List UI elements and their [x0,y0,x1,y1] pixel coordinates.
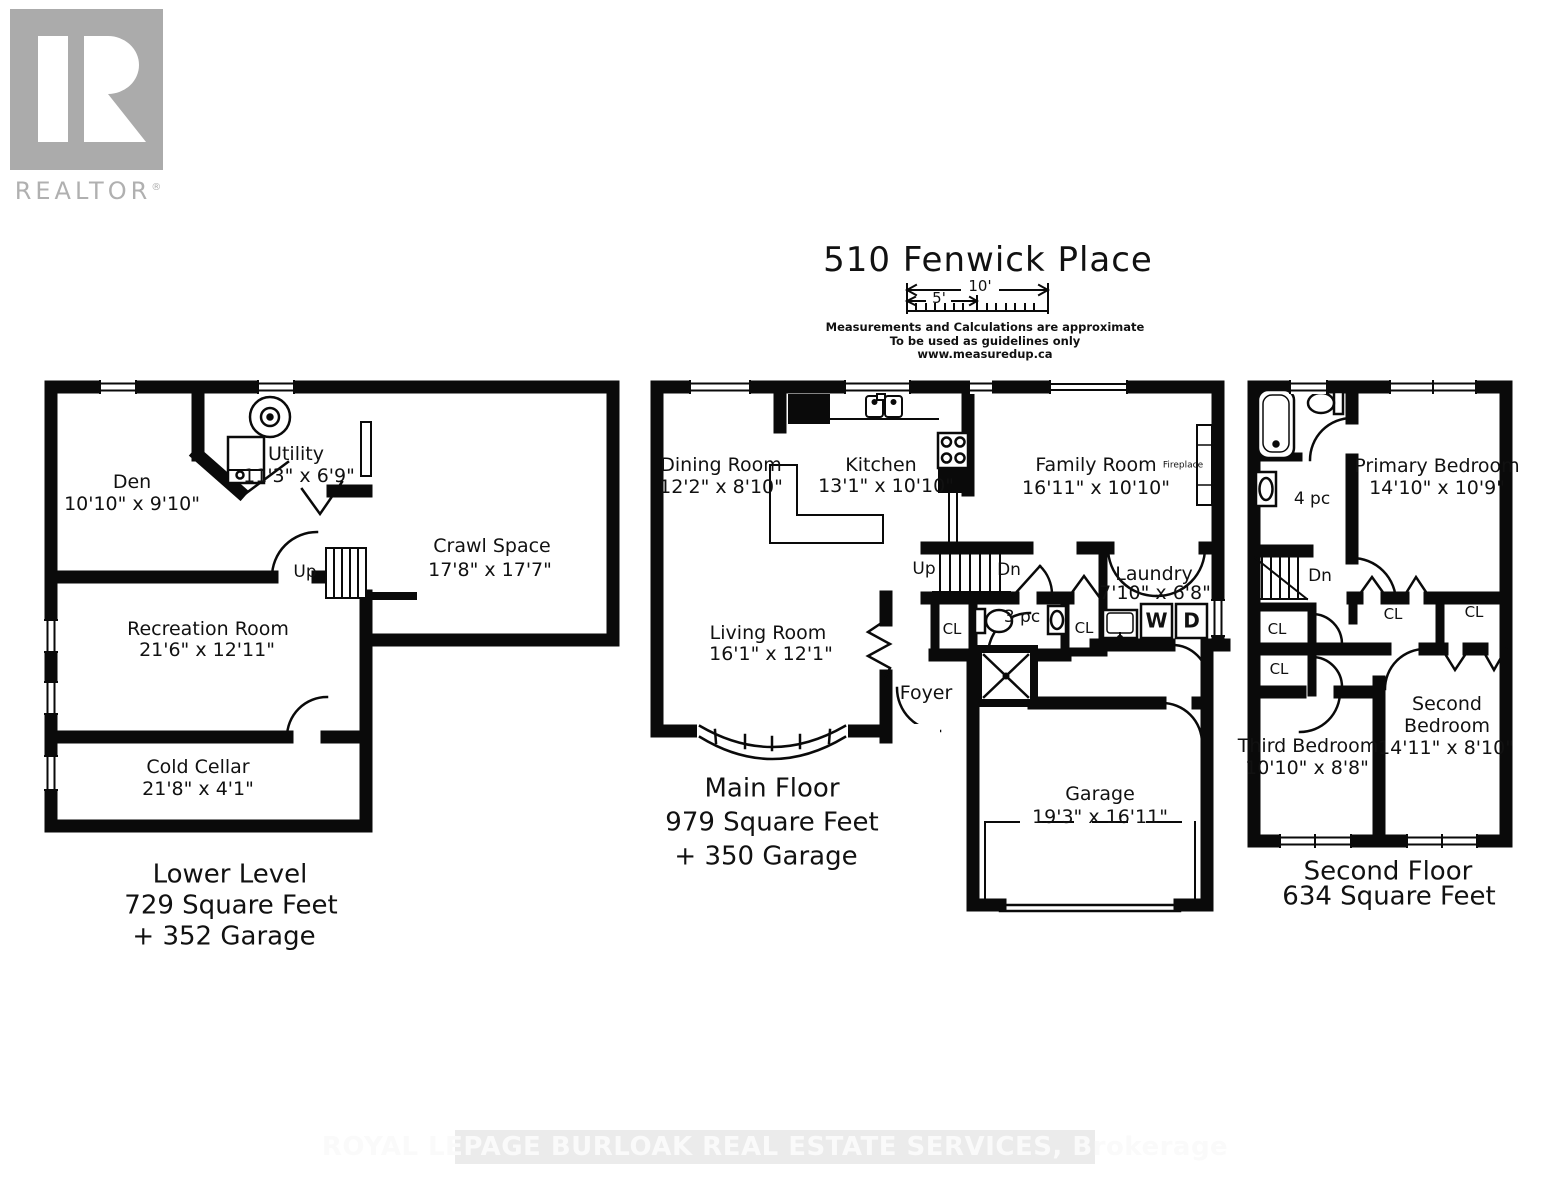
room-dims-primary-bedroom: 14'10" x 10'9" [1369,479,1505,499]
room-label-garage: Garage [1065,785,1135,805]
floor-title-lower: Lower Level [153,861,308,888]
page-title: 510 Fenwick Place [823,243,1153,279]
stairs-up-label-lower: Up [293,564,316,582]
room-label-recreation: Recreation Room [127,620,289,640]
room-label-living: Living Room [710,624,827,644]
room-label-crawl-space: Crawl Space [433,537,550,557]
room-dims-living: 16'1" x 12'1" [709,645,833,665]
room-dims-utility: 11'3" x 6'9" [243,467,355,487]
floor-extra-lower: + 352 Garage [132,923,315,950]
closet-label-second-4: CL [1465,605,1484,621]
closet-label-second-3: CL [1384,607,1403,623]
floorplan-page: REALTOR® 510 Fenwick Place 10' 5' Measur… [0,0,1553,1200]
closet-label-main-1: CL [943,622,962,638]
floor-title-main: Main Floor [704,775,839,802]
room-label-family: Family Room [1035,456,1156,476]
room-dims-garage: 19'3" x 16'11" [1032,808,1168,828]
realtor-logo-icon [10,9,163,170]
bath-4pc-label: 4 pc [1294,491,1330,509]
floor-extra-main: + 350 Garage [674,843,857,870]
room-dims-laundry: 7'10" x 6'8" [1099,584,1211,604]
room-dims-kitchen: 13'1" x 10'10" [818,477,954,497]
floor-area-second: 634 Square Feet [1282,883,1495,910]
realtor-logo-label: REALTOR® [8,177,168,205]
floor-area-lower: 729 Square Feet [124,892,337,919]
room-dims-third-bedroom: 10'10" x 8'8" [1245,759,1369,779]
disclaimer-line-1: Measurements and Calculations are approx… [826,321,1145,333]
scale-label-10ft: 10' [968,279,991,295]
room-label-kitchen: Kitchen [845,456,916,476]
room-label-primary-bedroom: Primary Bedroom [1354,457,1519,477]
floor-area-main: 979 Square Feet [665,809,878,836]
scale-label-5ft: 5' [932,291,946,307]
room-dims-recreation: 21'6" x 12'11" [139,641,275,661]
closet-label-second-2: CL [1270,662,1289,678]
stairs-dn-label-main: Dn [997,562,1021,580]
lower-level-walls [44,380,613,826]
room-dims-dining: 12'2" x 8'10" [659,478,783,498]
room-dims-cold-cellar: 21'8" x 4'1" [142,780,254,800]
brokerage-watermark: ROYAL LEPAGE BURLOAK REAL ESTATE SERVICE… [455,1130,1095,1164]
room-label-third-bedroom: Third Bedroom [1238,737,1378,757]
room-label-dining: Dining Room [660,456,781,476]
room-dims-family: 16'11" x 10'10" [1022,479,1170,499]
stairs-up-label-main: Up [912,561,935,579]
room-label-den: Den [113,473,151,493]
closet-label-second-1: CL [1268,622,1287,638]
closet-label-main-2: CL [1075,621,1094,637]
stairs-dn-label-second: Dn [1308,568,1332,586]
bath-3pc-label: 3 pc [1004,609,1040,627]
room-dims-den: 10'10" x 9'10" [64,495,200,515]
washer-label: W [1145,611,1167,632]
room-label-second-bedroom-1: Second [1412,695,1482,715]
floorplan-drawing [0,0,1553,1200]
room-label-utility: Utility [268,445,324,465]
disclaimer-line-3: www.measuredup.ca [917,348,1052,360]
room-dims-crawl-space: 17'8" x 17'7" [428,561,552,581]
room-label-cold-cellar: Cold Cellar [146,758,249,778]
foyer-label: Foyer [900,684,953,704]
room-label-second-bedroom-2: Bedroom [1404,717,1490,737]
room-dims-second-bedroom: 14'11" x 8'10" [1378,739,1514,759]
fireplace-label: Fireplace [1163,461,1203,470]
disclaimer-line-2: To be used as guidelines only [890,335,1081,347]
dryer-label: D [1183,611,1200,632]
